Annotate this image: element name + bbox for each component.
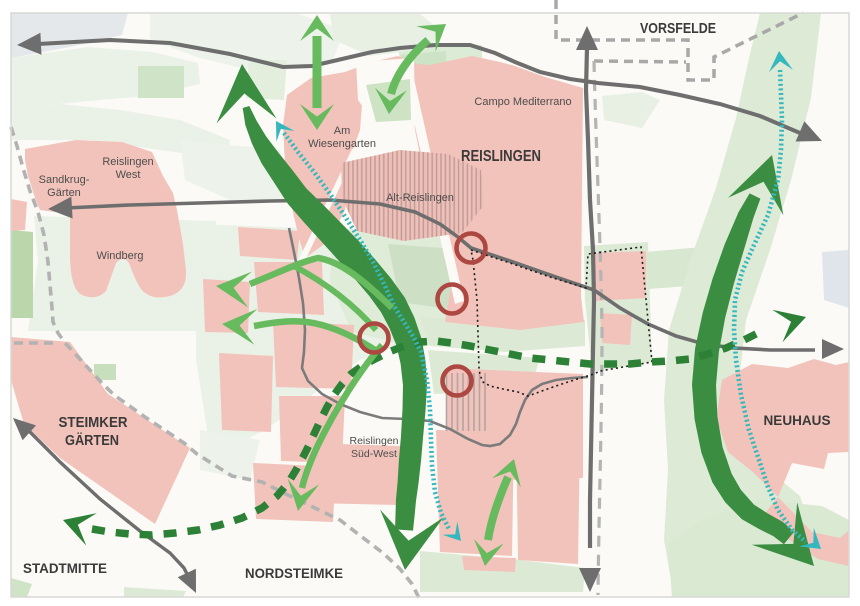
svg-text:Reislingen: Reislingen <box>102 156 153 168</box>
svg-text:NORDSTEIMKE: NORDSTEIMKE <box>245 566 343 581</box>
svg-text:Am: Am <box>334 125 351 137</box>
svg-text:NEUHAUS: NEUHAUS <box>764 413 831 428</box>
svg-text:VORSFELDE: VORSFELDE <box>640 20 716 37</box>
svg-text:West: West <box>116 169 141 181</box>
svg-text:Süd-West: Süd-West <box>351 448 397 460</box>
svg-text:Wiesengarten: Wiesengarten <box>308 138 376 150</box>
svg-text:STEIMKER: STEIMKER <box>59 415 128 431</box>
svg-text:Gärten: Gärten <box>47 187 81 199</box>
svg-text:Sandkrug-: Sandkrug- <box>39 174 90 186</box>
svg-text:Windberg: Windberg <box>96 250 143 262</box>
svg-text:Campo Mediterrano: Campo Mediterrano <box>474 96 571 108</box>
svg-text:REISLINGEN: REISLINGEN <box>461 148 541 165</box>
svg-text:Reislingen: Reislingen <box>349 435 398 447</box>
svg-text:GÄRTEN: GÄRTEN <box>65 432 119 449</box>
svg-text:STADTMITTE: STADTMITTE <box>23 561 107 576</box>
svg-text:Alt-Reislingen: Alt-Reislingen <box>386 192 454 204</box>
